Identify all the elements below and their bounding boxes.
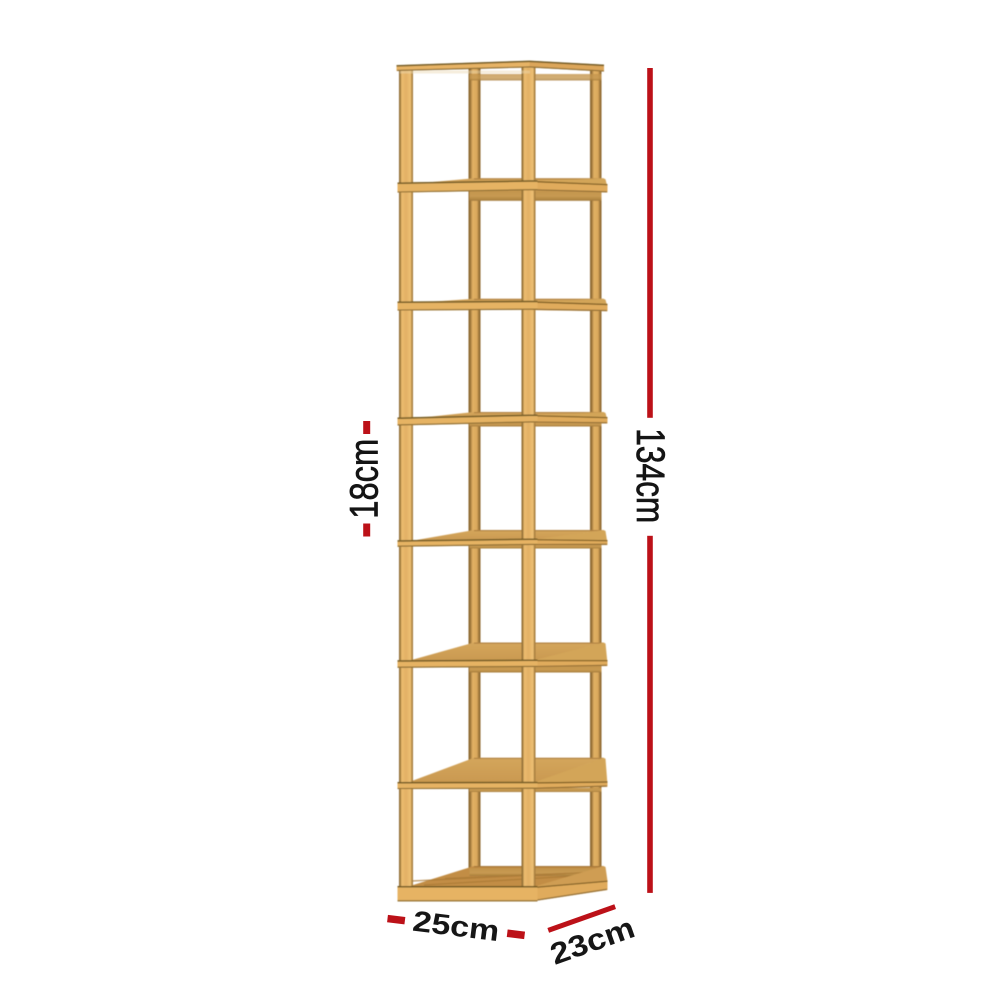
svg-text:25cm: 25cm — [411, 906, 501, 948]
svg-text:134cm: 134cm — [628, 428, 672, 523]
svg-text:23cm: 23cm — [546, 911, 639, 971]
svg-text:18cm: 18cm — [343, 439, 387, 519]
